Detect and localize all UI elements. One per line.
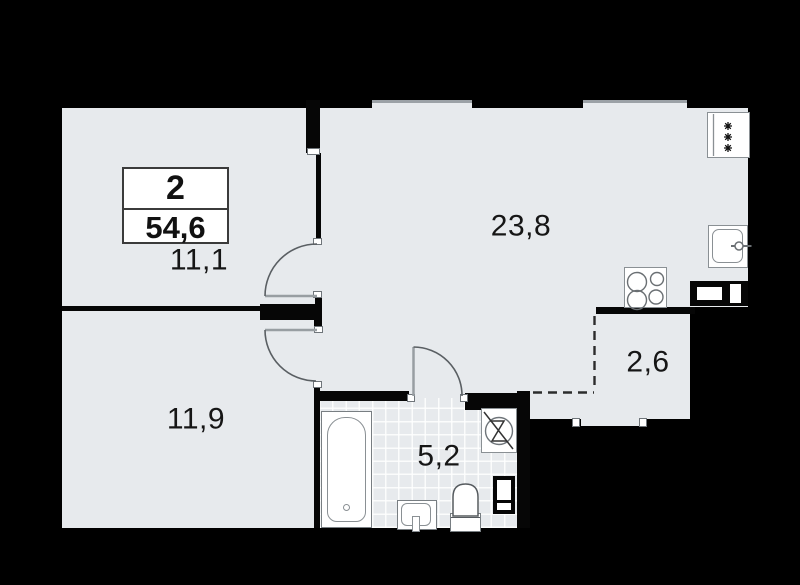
jamb-balcony-step-right <box>639 418 647 427</box>
wall-bathroom-top-left <box>314 391 409 401</box>
room-area-label-balcony: 2,6 <box>626 346 669 380</box>
wall-partition-upper <box>316 153 321 244</box>
wall-column-top <box>306 100 320 153</box>
room-living-kitchen-floor <box>320 108 748 307</box>
unit-info-box: 2 54,6 <box>122 167 229 244</box>
stove <box>624 267 667 308</box>
jamb-door2-bottom <box>313 381 322 388</box>
window-living-left <box>372 100 472 108</box>
washing-machine <box>481 408 517 453</box>
bathtub-drain-icon <box>343 504 350 511</box>
wall-balcony-top <box>596 307 695 314</box>
doorway-bedroom2 <box>314 331 322 384</box>
jamb-bathdoor-left <box>407 394 415 402</box>
jamb-door2-top <box>314 326 323 333</box>
vent-box-cell-right <box>730 284 741 303</box>
wall-partition-lower <box>314 384 320 528</box>
doorway-bedroom1 <box>314 244 322 296</box>
jamb-balcony-step-left <box>572 418 580 427</box>
floor-plan: 2 54,6 11,1 23,8 2,6 11,9 5,2 <box>0 0 800 585</box>
room-living-lower-floor <box>319 307 530 398</box>
room-area-label-bedroom1: 11,1 <box>170 244 228 278</box>
wall-bathroom-right <box>517 391 530 528</box>
room-area-label-bathroom: 5,2 <box>417 440 460 474</box>
washbasin-pedestal <box>412 516 420 532</box>
jamb-column-end <box>307 148 320 155</box>
kitchen-sink-basin <box>712 229 743 263</box>
vent-box-cell-left <box>697 287 722 300</box>
window-living-right <box>583 100 687 108</box>
room-area-label-bedroom2: 11,9 <box>167 403 225 437</box>
unit-rooms-count: 2 <box>124 169 227 210</box>
toilet-tank <box>450 513 481 532</box>
wall-between-bedrooms-thick <box>260 304 317 320</box>
unit-total-area: 54,6 <box>124 210 227 246</box>
wall-between-bedrooms-thin <box>62 306 262 311</box>
duct-shaft-cell-top <box>497 480 511 500</box>
jamb-door1-top <box>313 238 322 245</box>
room-area-label-living-kitchen: 23,8 <box>491 210 551 244</box>
duct-shaft-cell-bottom <box>497 503 511 510</box>
balcony-parapet-notch <box>581 419 640 426</box>
balcony-access-strip <box>530 307 596 419</box>
jamb-door1-bottom <box>313 291 322 298</box>
fridge <box>707 112 750 158</box>
jamb-bathdoor-right <box>460 394 468 402</box>
